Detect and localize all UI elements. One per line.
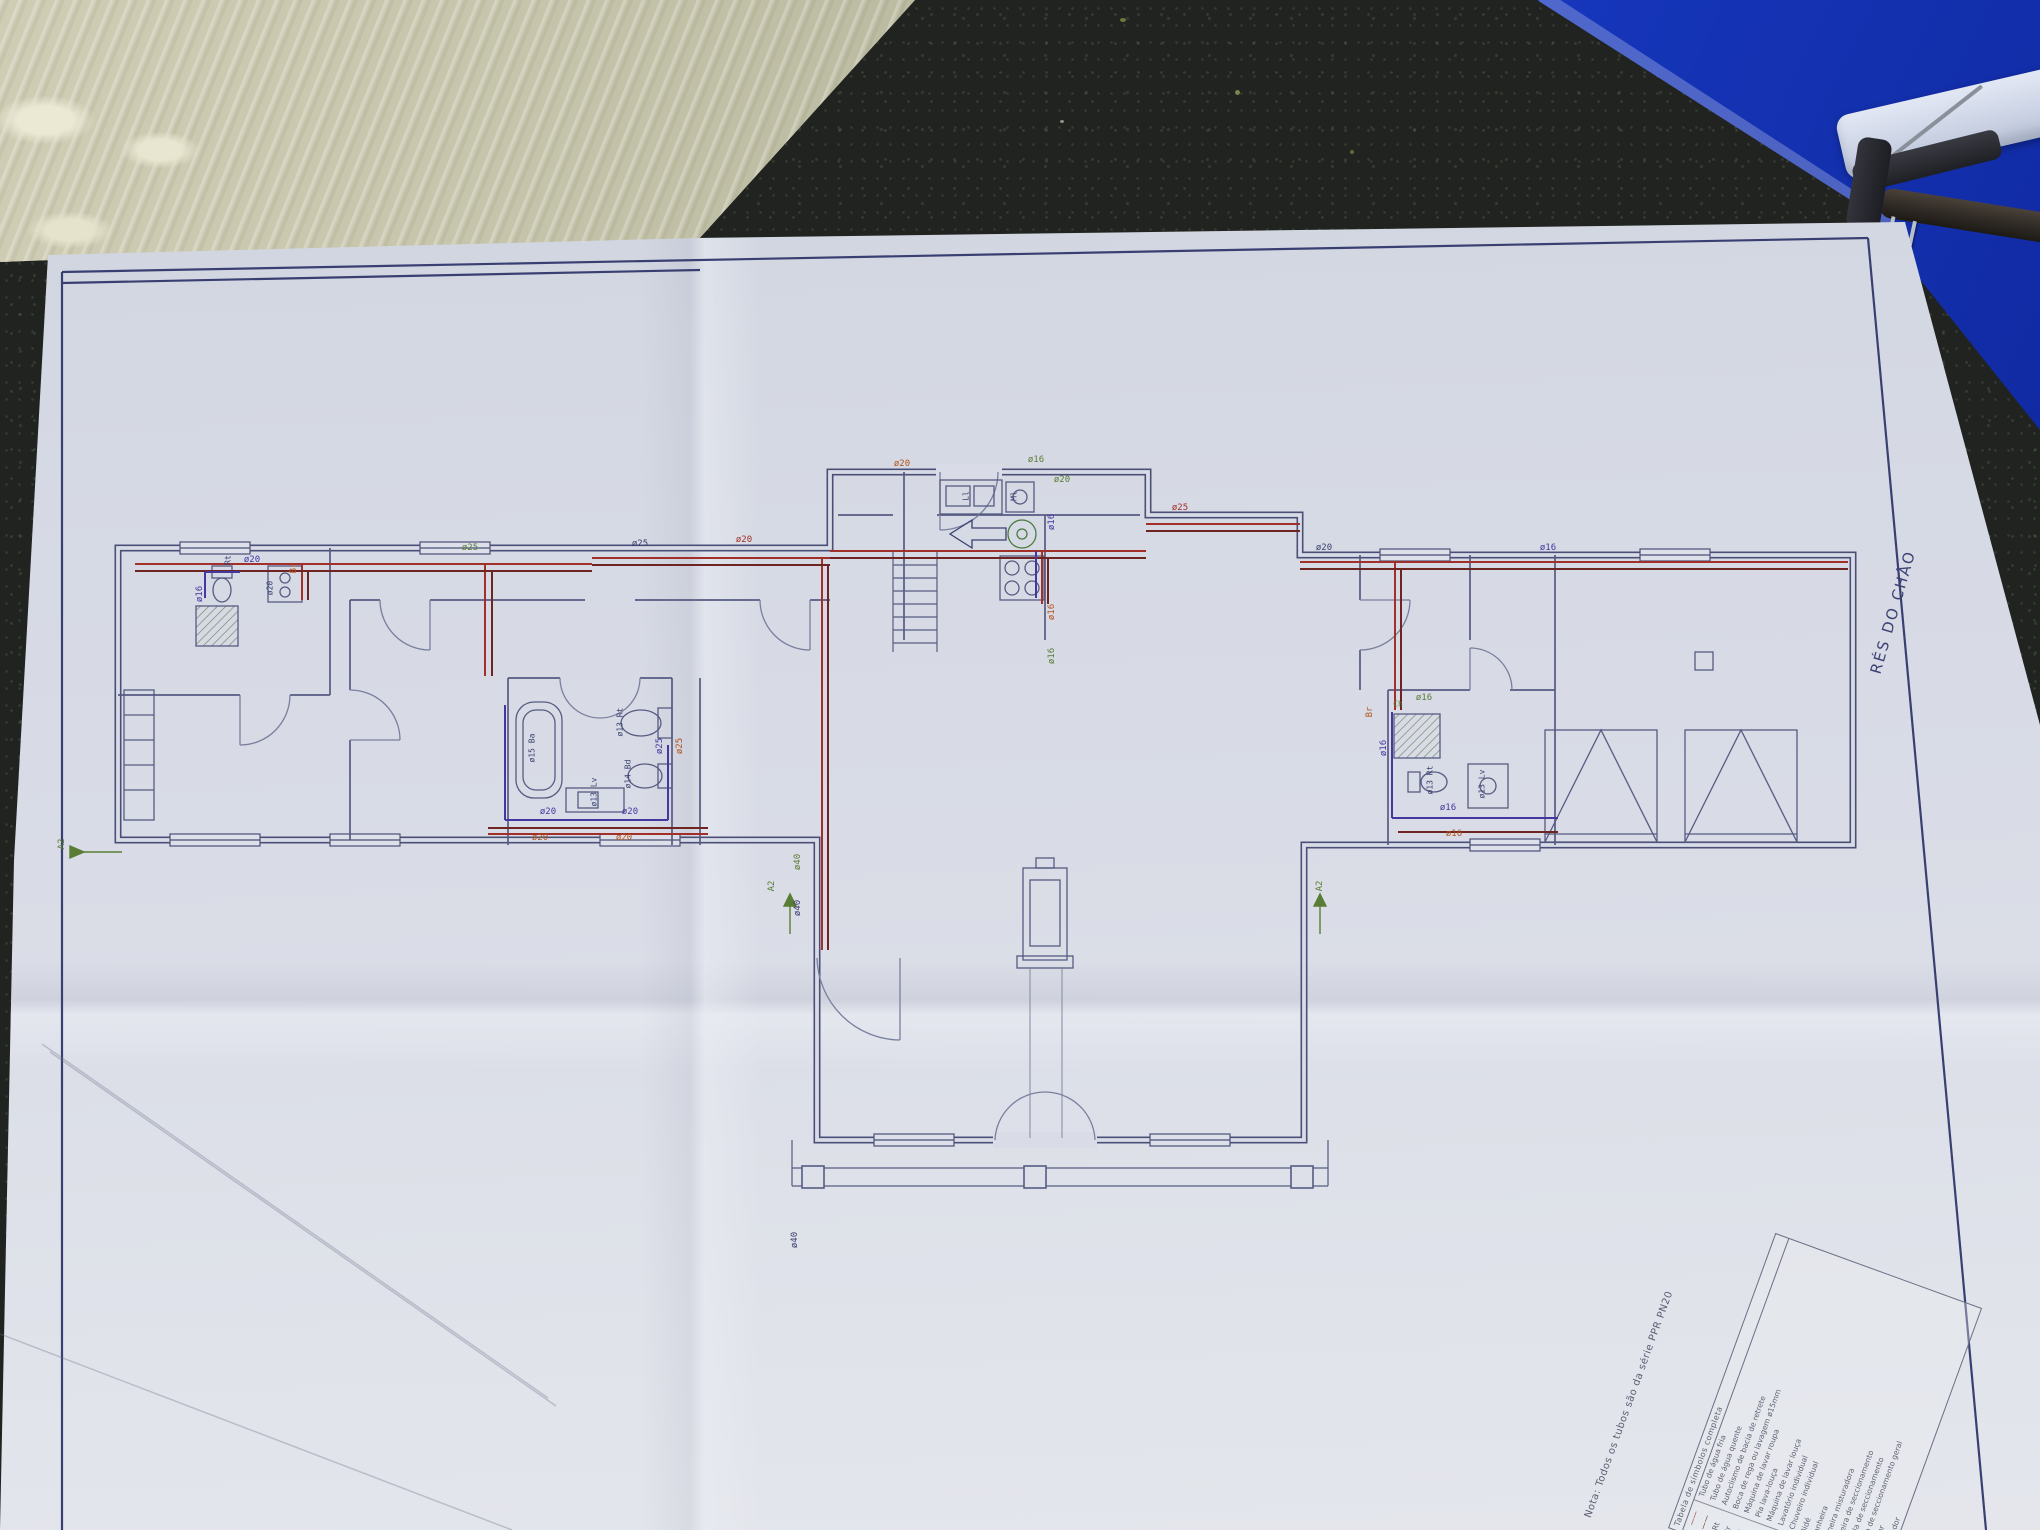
pipe-label: A2 <box>57 839 67 850</box>
pipe-label: ø20 <box>1316 543 1332 553</box>
pipe-label: ø16 <box>1446 829 1462 839</box>
pipe-label: ø20 <box>622 807 638 817</box>
pipe-label: ø25 <box>632 539 648 549</box>
pipe-label: ø20 <box>1054 475 1070 485</box>
pipe-label: ø20 <box>616 833 632 843</box>
pipe-label: ø40 <box>793 900 803 916</box>
pipe-label: Rt <box>224 555 233 565</box>
pipe-label: ø15 Ba <box>528 734 537 763</box>
cold-water-pipes <box>135 524 1848 950</box>
pipe-label: A2 <box>767 881 777 892</box>
pipe-label: ø14 Bd <box>624 760 633 789</box>
pipe-label: ø16 <box>195 586 205 602</box>
pipe-label: ø16 <box>1047 648 1057 664</box>
pipe-label: Br <box>289 563 299 574</box>
pipe-label: ø16 <box>1047 514 1057 530</box>
pipe-label: ø25 <box>655 738 665 754</box>
sheet-border <box>62 238 1986 1530</box>
section-markers <box>70 846 1326 934</box>
windows <box>170 542 1710 1146</box>
door-swings <box>240 472 1512 1140</box>
pipe-label: ø16 <box>1047 604 1057 620</box>
pipe-label: ø25 <box>675 738 685 754</box>
pipe-label: ø16 <box>1379 740 1389 756</box>
pipe-label: ø20 <box>532 833 548 843</box>
pipe-label: ø40 <box>790 1232 800 1248</box>
pipe-label: ø20 <box>894 459 910 469</box>
floor-plan-drawing <box>0 0 2040 1530</box>
pipe-label: ø13 Rt <box>1426 766 1435 795</box>
crease-lines <box>0 1044 556 1530</box>
partition-walls <box>118 472 1555 845</box>
pipe-label: ø13 Lv <box>1478 770 1487 799</box>
outer-walls <box>118 464 1853 1148</box>
pipe-label: ø25 <box>462 543 478 553</box>
pipe-label: A2 <box>1315 881 1325 892</box>
pipe-label: ø16 <box>1416 693 1432 703</box>
pipe-label: Br <box>1365 707 1375 718</box>
pipe-label: ø13 Lv <box>590 778 599 807</box>
fitting-pipes <box>205 551 1558 820</box>
pipe-label: ø20 <box>540 807 556 817</box>
pipe-label: Ll <box>962 491 971 501</box>
pipe-label: Ml <box>1010 491 1019 501</box>
pipe-label: ø40 <box>793 854 803 870</box>
pipe-label: ø20 <box>244 555 260 565</box>
pipe-label: Ch <box>1393 700 1403 709</box>
pipe-label: ø13 Rt <box>616 708 625 737</box>
pipe-label: ø16 <box>1540 543 1556 553</box>
staircase <box>893 552 937 652</box>
pipe-label: ø16 <box>1028 455 1044 465</box>
pipe-label: ø20 <box>266 581 275 595</box>
photo-scene: ø16ø20Brø20Rtø25ø25ø20ø20ø16ø20ø25ø20ø16… <box>0 0 2040 1530</box>
pipe-label: ø20 <box>736 535 752 545</box>
pipe-label: ø16 <box>1440 803 1456 813</box>
pipe-label: ø25 <box>1172 503 1188 513</box>
